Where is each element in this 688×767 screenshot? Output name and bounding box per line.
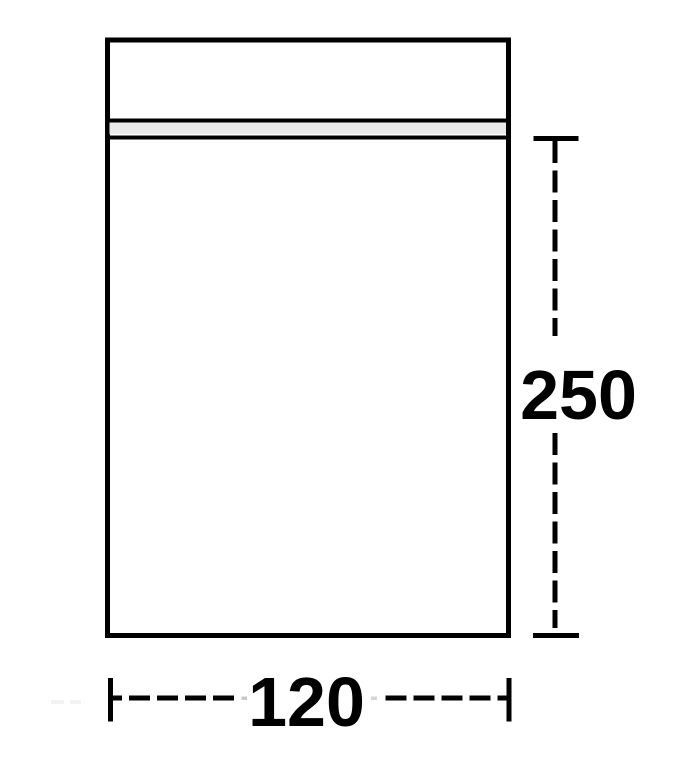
svg-text:250: 250 (520, 356, 637, 434)
svg-text:120: 120 (248, 663, 365, 741)
